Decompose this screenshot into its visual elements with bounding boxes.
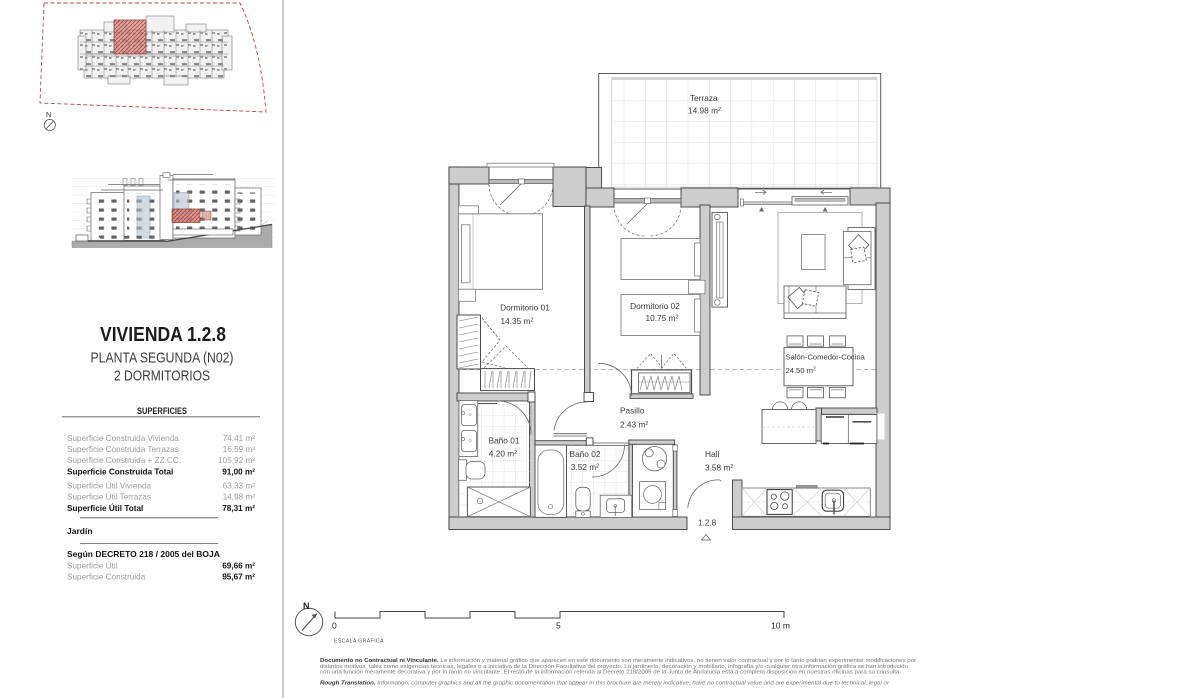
svg-text:2.43 m2: 2.43 m2 xyxy=(620,420,648,430)
svg-text:105,92 m²: 105,92 m² xyxy=(218,456,255,465)
svg-text:VIVIENDA 1.2.8: VIVIENDA 1.2.8 xyxy=(100,324,226,346)
svg-text:14.35 m2: 14.35 m2 xyxy=(500,316,533,326)
svg-text:Superficie Útil Vivienda: Superficie Útil Vivienda xyxy=(67,481,151,491)
svg-text:16,59 m²: 16,59 m² xyxy=(223,445,256,454)
svg-text:3.58 m2: 3.58 m2 xyxy=(705,463,733,473)
svg-text:Dormitorio 02: Dormitorio 02 xyxy=(630,301,680,311)
svg-text:10.75 m2: 10.75 m2 xyxy=(645,313,678,323)
svg-text:69,66 m²: 69,66 m² xyxy=(222,562,255,571)
svg-text:Baño 01: Baño 01 xyxy=(489,436,520,446)
svg-text:78,31 m²: 78,31 m² xyxy=(222,504,255,513)
svg-text:91,00 m²: 91,00 m² xyxy=(222,468,255,477)
svg-text:con una función meramente deco: con una función meramente decorativa y p… xyxy=(320,670,901,676)
svg-text:14.98 m2: 14.98 m2 xyxy=(688,106,721,116)
svg-text:0: 0 xyxy=(332,621,337,631)
svg-text:Dormitorio 01: Dormitorio 01 xyxy=(500,303,550,313)
svg-text:63,33 m²: 63,33 m² xyxy=(223,482,256,491)
svg-text:2 DORMITORIOS: 2 DORMITORIOS xyxy=(114,369,210,385)
svg-text:PLANTA SEGUNDA (N02): PLANTA SEGUNDA (N02) xyxy=(91,351,234,367)
svg-text:N: N xyxy=(303,601,310,611)
svg-text:1.2.8: 1.2.8 xyxy=(698,519,717,528)
svg-text:3.52 m2: 3.52 m2 xyxy=(571,462,599,472)
svg-text:Superficie Construida Vivienda: Superficie Construida Vivienda xyxy=(67,434,179,443)
svg-text:Superficie Construida Total: Superficie Construida Total xyxy=(67,468,173,477)
svg-text:14,98 m²: 14,98 m² xyxy=(223,493,256,502)
svg-text:Superficie Construida: Superficie Construida xyxy=(67,573,146,582)
svg-text:74,41 m²: 74,41 m² xyxy=(223,434,256,443)
svg-text:95,67 m²: 95,67 m² xyxy=(222,573,255,582)
svg-text:SUPERFICIES: SUPERFICIES xyxy=(137,406,187,417)
svg-text:Superficie Útil Total: Superficie Útil Total xyxy=(67,502,143,513)
svg-text:Baño 02: Baño 02 xyxy=(570,449,601,459)
svg-text:Superficie Construida + ZZ.CC.: Superficie Construida + ZZ.CC. xyxy=(67,456,181,465)
svg-text:ESCALA GRÁFICA: ESCALA GRÁFICA xyxy=(334,638,384,645)
svg-text:4.20 m2: 4.20 m2 xyxy=(489,449,517,459)
svg-text:10 m: 10 m xyxy=(771,621,790,631)
svg-text:Superficie Útil: Superficie Útil xyxy=(67,561,118,571)
svg-text:Superficie Útil Terrazas: Superficie Útil Terrazas xyxy=(67,492,151,502)
svg-text:Superficie Construida Terrazas: Superficie Construida Terrazas xyxy=(67,445,179,454)
svg-text:Según DECRETO 218 / 2005 del B: Según DECRETO 218 / 2005 del BOJA xyxy=(67,549,220,559)
svg-text:Terraza: Terraza xyxy=(690,93,718,103)
svg-text:Jardín: Jardín xyxy=(67,526,93,536)
svg-text:Hall: Hall xyxy=(705,449,719,459)
svg-text:24.50 m2: 24.50 m2 xyxy=(786,366,816,375)
svg-text:N: N xyxy=(46,110,51,119)
svg-text:Rough Translation. Information: Rough Translation. Information, computer… xyxy=(320,681,889,687)
svg-text:5: 5 xyxy=(556,621,561,631)
svg-text:Salón-Comedor-Cocina: Salón-Comedor-Cocina xyxy=(786,353,866,362)
svg-text:Pasillo: Pasillo xyxy=(620,406,645,416)
